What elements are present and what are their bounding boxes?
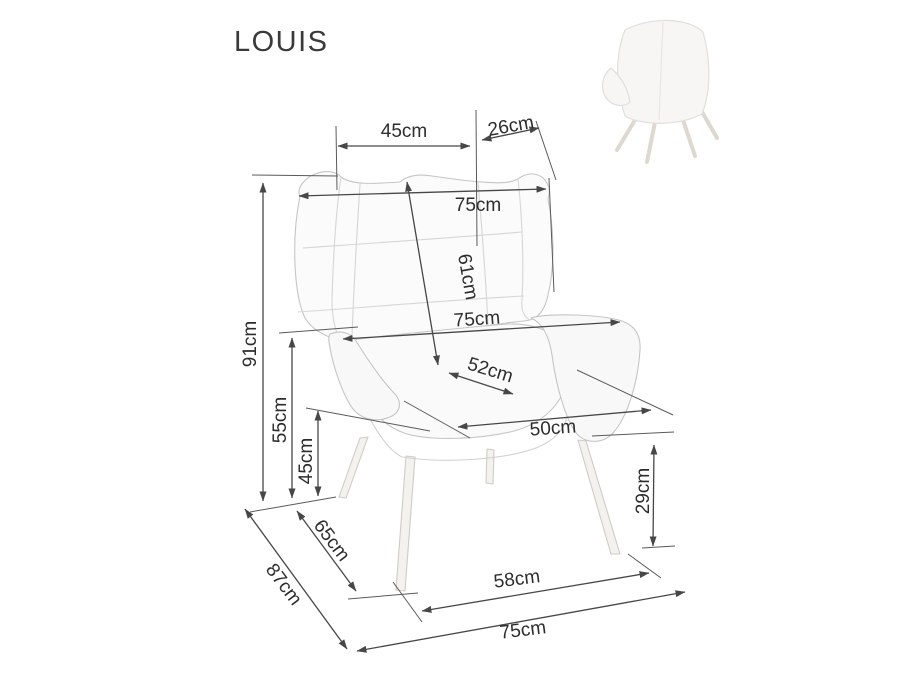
thumbnail-photo bbox=[603, 20, 717, 162]
dim-label-armrest-height: 55cm bbox=[270, 390, 292, 450]
dim-label-back-top-width: 75cm bbox=[448, 195, 508, 217]
dimension-diagram bbox=[0, 0, 913, 685]
dim-label-leg-height: 29cm bbox=[633, 461, 655, 521]
chair-drawing bbox=[295, 172, 640, 591]
chair-leg-back-right bbox=[486, 449, 494, 484]
product-title: LOUIS bbox=[234, 26, 329, 59]
chair-leg-back-left bbox=[339, 437, 368, 498]
dim-label-seat-top-width: 45cm bbox=[374, 121, 434, 143]
chair-leg-front-left bbox=[396, 456, 415, 591]
dim-label-total-height: 91cm bbox=[240, 314, 262, 374]
chair-leg-front-right bbox=[578, 440, 620, 554]
dim-label-seat-height: 45cm bbox=[296, 431, 318, 491]
thumbnail-back bbox=[618, 20, 709, 123]
chair-legs bbox=[339, 437, 620, 591]
dim-label-seat-width: 50cm bbox=[522, 416, 583, 442]
dimension-sheet: LOUIS 45cm 26cm 75cm 61cm 75cm 52cm 50cm… bbox=[0, 0, 913, 685]
dim-label-armrest-level-width: 75cm bbox=[446, 307, 507, 333]
